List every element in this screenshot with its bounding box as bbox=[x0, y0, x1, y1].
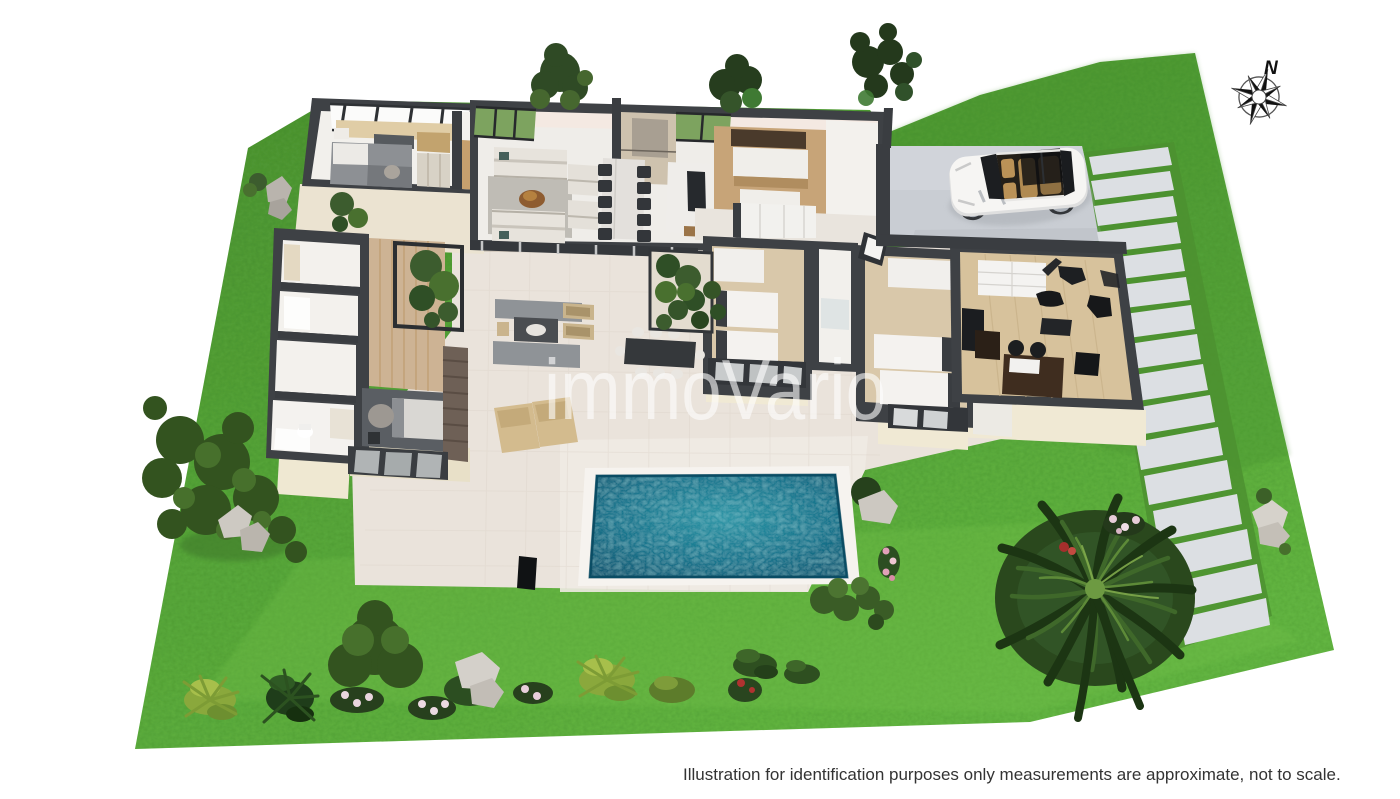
svg-text:N: N bbox=[1264, 58, 1279, 79]
svg-text:Illustration for identificatio: Illustration for identification purposes… bbox=[683, 765, 1341, 784]
svg-text:immoVario: immoVario bbox=[544, 343, 886, 438]
